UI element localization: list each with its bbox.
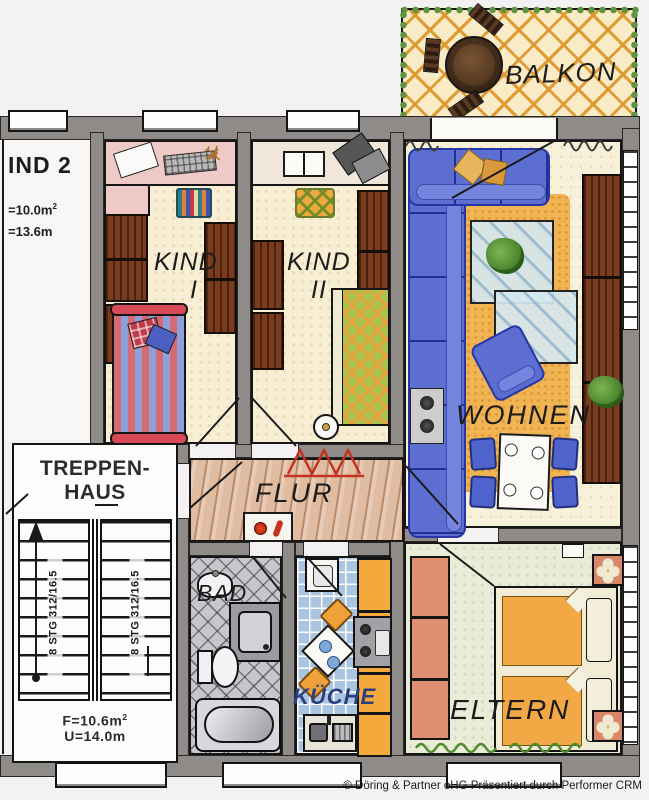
- eltern-label: ELTERN: [450, 694, 570, 726]
- balcony-area: BALKON: [401, 8, 637, 126]
- bad-toilet: [211, 646, 239, 688]
- kind1-bed-headboard: [110, 303, 188, 316]
- stair-flight-right-label: 8 STG 312/16.5: [130, 548, 145, 678]
- stairwell-title-line2: HAUS: [14, 481, 176, 505]
- kueche-fridge: [305, 558, 339, 592]
- adjacent-unit-area-sup: 2: [52, 202, 56, 211]
- window-top-left: [8, 110, 68, 132]
- wohnen-sofa-left: [408, 148, 466, 538]
- kind1-desk-left: [106, 186, 150, 216]
- stair-divider: [92, 519, 98, 701]
- wall-bad-top: [189, 542, 250, 556]
- kind2-bed: [331, 288, 390, 426]
- kind2-open-book: [283, 151, 325, 177]
- stairwell-measurements: F=10.6m2 U=14.0m: [14, 713, 176, 745]
- kueche-stove: [353, 616, 392, 668]
- kind2-shelf-left-upper: [251, 240, 284, 310]
- stair-flights: 8 STG 312/16.5 8 STG 312/16.5: [18, 519, 172, 701]
- stair-flight-right: 8 STG 312/16.5: [100, 519, 172, 701]
- wohnen-plant-2: [588, 376, 624, 408]
- stairwell-area-value: F=10.6m: [62, 713, 122, 729]
- wall-kind-divider: [237, 132, 251, 458]
- wohnen-dining-table: [497, 433, 552, 511]
- dining-chair: [469, 437, 497, 471]
- kind1-bed: [112, 308, 186, 440]
- room-flur: FLUR: [189, 458, 404, 542]
- room-kind2: KIND II: [251, 140, 390, 444]
- adjacent-unit-area-value: =10.0m: [8, 202, 52, 217]
- wall-kind-bottom-c: [298, 444, 404, 458]
- wohnen-wall-unit: [582, 174, 622, 484]
- dining-chair: [551, 437, 579, 471]
- bad-shower: [229, 602, 281, 662]
- eltern-wardrobe: [410, 556, 450, 740]
- stairwell: TREPPEN- HAUS 8 STG 312/16.5 8 STG 312/1…: [12, 443, 178, 763]
- kind2-side-table: [313, 414, 339, 440]
- kind1-shelf-right: [204, 222, 237, 334]
- balcony-chair: [423, 38, 441, 73]
- kind1-label-number: I: [190, 276, 198, 305]
- kueche-label: KÜCHE: [293, 684, 376, 710]
- stairwell-title-line1: TREPPEN-: [14, 457, 176, 481]
- adjacent-unit-length: =13.6m: [8, 224, 52, 239]
- bad-bathtub: [195, 698, 281, 752]
- wohnen-label: WOHNEN: [456, 400, 591, 431]
- eltern-pillow-1: [586, 598, 612, 662]
- room-wohnen: WOHNEN: [404, 140, 622, 528]
- kind2-label-number: II: [311, 276, 327, 305]
- room-bad: BAD: [189, 556, 282, 755]
- window-eltern-right: [623, 545, 638, 745]
- stair-flight-left: 8 STG 312/16.5: [18, 519, 90, 701]
- kind1-rug: [176, 188, 212, 218]
- kind2-label: KIND: [287, 248, 351, 277]
- vine-right: [629, 10, 640, 124]
- wall-kueche-top-a: [295, 542, 304, 556]
- floor-plan-canvas: BALKON IND 2 =10.0m2 =13.6m ✈: [0, 0, 649, 800]
- wall-kind1-left: [90, 132, 104, 458]
- adjacent-unit-name: IND 2: [8, 152, 72, 179]
- vine-left: [398, 10, 409, 124]
- window-bottom-stairs: [55, 762, 167, 788]
- wohnen-hifi: [410, 388, 444, 444]
- balcony-door-opening: [430, 118, 558, 139]
- wohnen-cushion: [480, 158, 508, 186]
- adjacent-unit-area: =10.0m2: [8, 202, 57, 217]
- window-kind2: [286, 110, 360, 132]
- eltern-nightstand-plant-top: [592, 554, 624, 586]
- kind2-rug: [295, 188, 335, 218]
- dining-chair: [469, 475, 497, 508]
- kueche-plate: [327, 656, 340, 669]
- stairwell-area-sup: 2: [122, 712, 127, 722]
- kind1-label: KIND: [154, 248, 218, 277]
- copyright-text: © Döring & Partner oHG Präsentiert durch…: [320, 780, 642, 792]
- room-kueche: KÜCHE: [295, 556, 390, 755]
- stair-flight-left-label: 8 STG 312/16.5: [48, 548, 63, 678]
- kind1-shelf-left-upper: [104, 214, 148, 302]
- kind2-shelf-left-lower: [251, 312, 284, 370]
- stairwell-perimeter: U=14.0m: [14, 729, 176, 745]
- wall-bad-kueche: [282, 542, 295, 770]
- vine-top: [399, 5, 639, 16]
- wall-kind-bottom-b: [235, 444, 252, 458]
- wall-eltern-top-b: [498, 528, 622, 542]
- room-eltern: ELTERN: [404, 542, 622, 755]
- kueche-sink: [303, 714, 357, 752]
- flur-label: FLUR: [255, 478, 334, 509]
- wall-kind2-wohnen: [390, 132, 404, 458]
- wohnen-plant: [486, 238, 524, 274]
- adjacent-unit: IND 2 =10.0m2 =13.6m: [2, 140, 90, 440]
- wall-kueche-top-b: [348, 542, 390, 556]
- wall-kueche-eltern: [390, 524, 404, 770]
- stairwell-area: F=10.6m2: [14, 713, 176, 729]
- balcony-label: BALKON: [504, 56, 617, 91]
- eltern-shelf-box: [562, 544, 584, 558]
- flur-console-table: [243, 512, 293, 542]
- kind2-bed-edge: [333, 290, 343, 424]
- kueche-plate: [319, 640, 332, 653]
- dining-chair: [551, 475, 579, 508]
- window-kind1: [142, 110, 218, 132]
- room-kind1: ✈ KIND I: [104, 140, 237, 444]
- eltern-duvet-1: [502, 596, 582, 666]
- balcony-table: [445, 36, 503, 94]
- window-wohnen-right: [623, 150, 638, 330]
- eltern-nightstand-plant-bottom: [592, 710, 624, 742]
- stairwell-title: TREPPEN- HAUS: [14, 457, 176, 504]
